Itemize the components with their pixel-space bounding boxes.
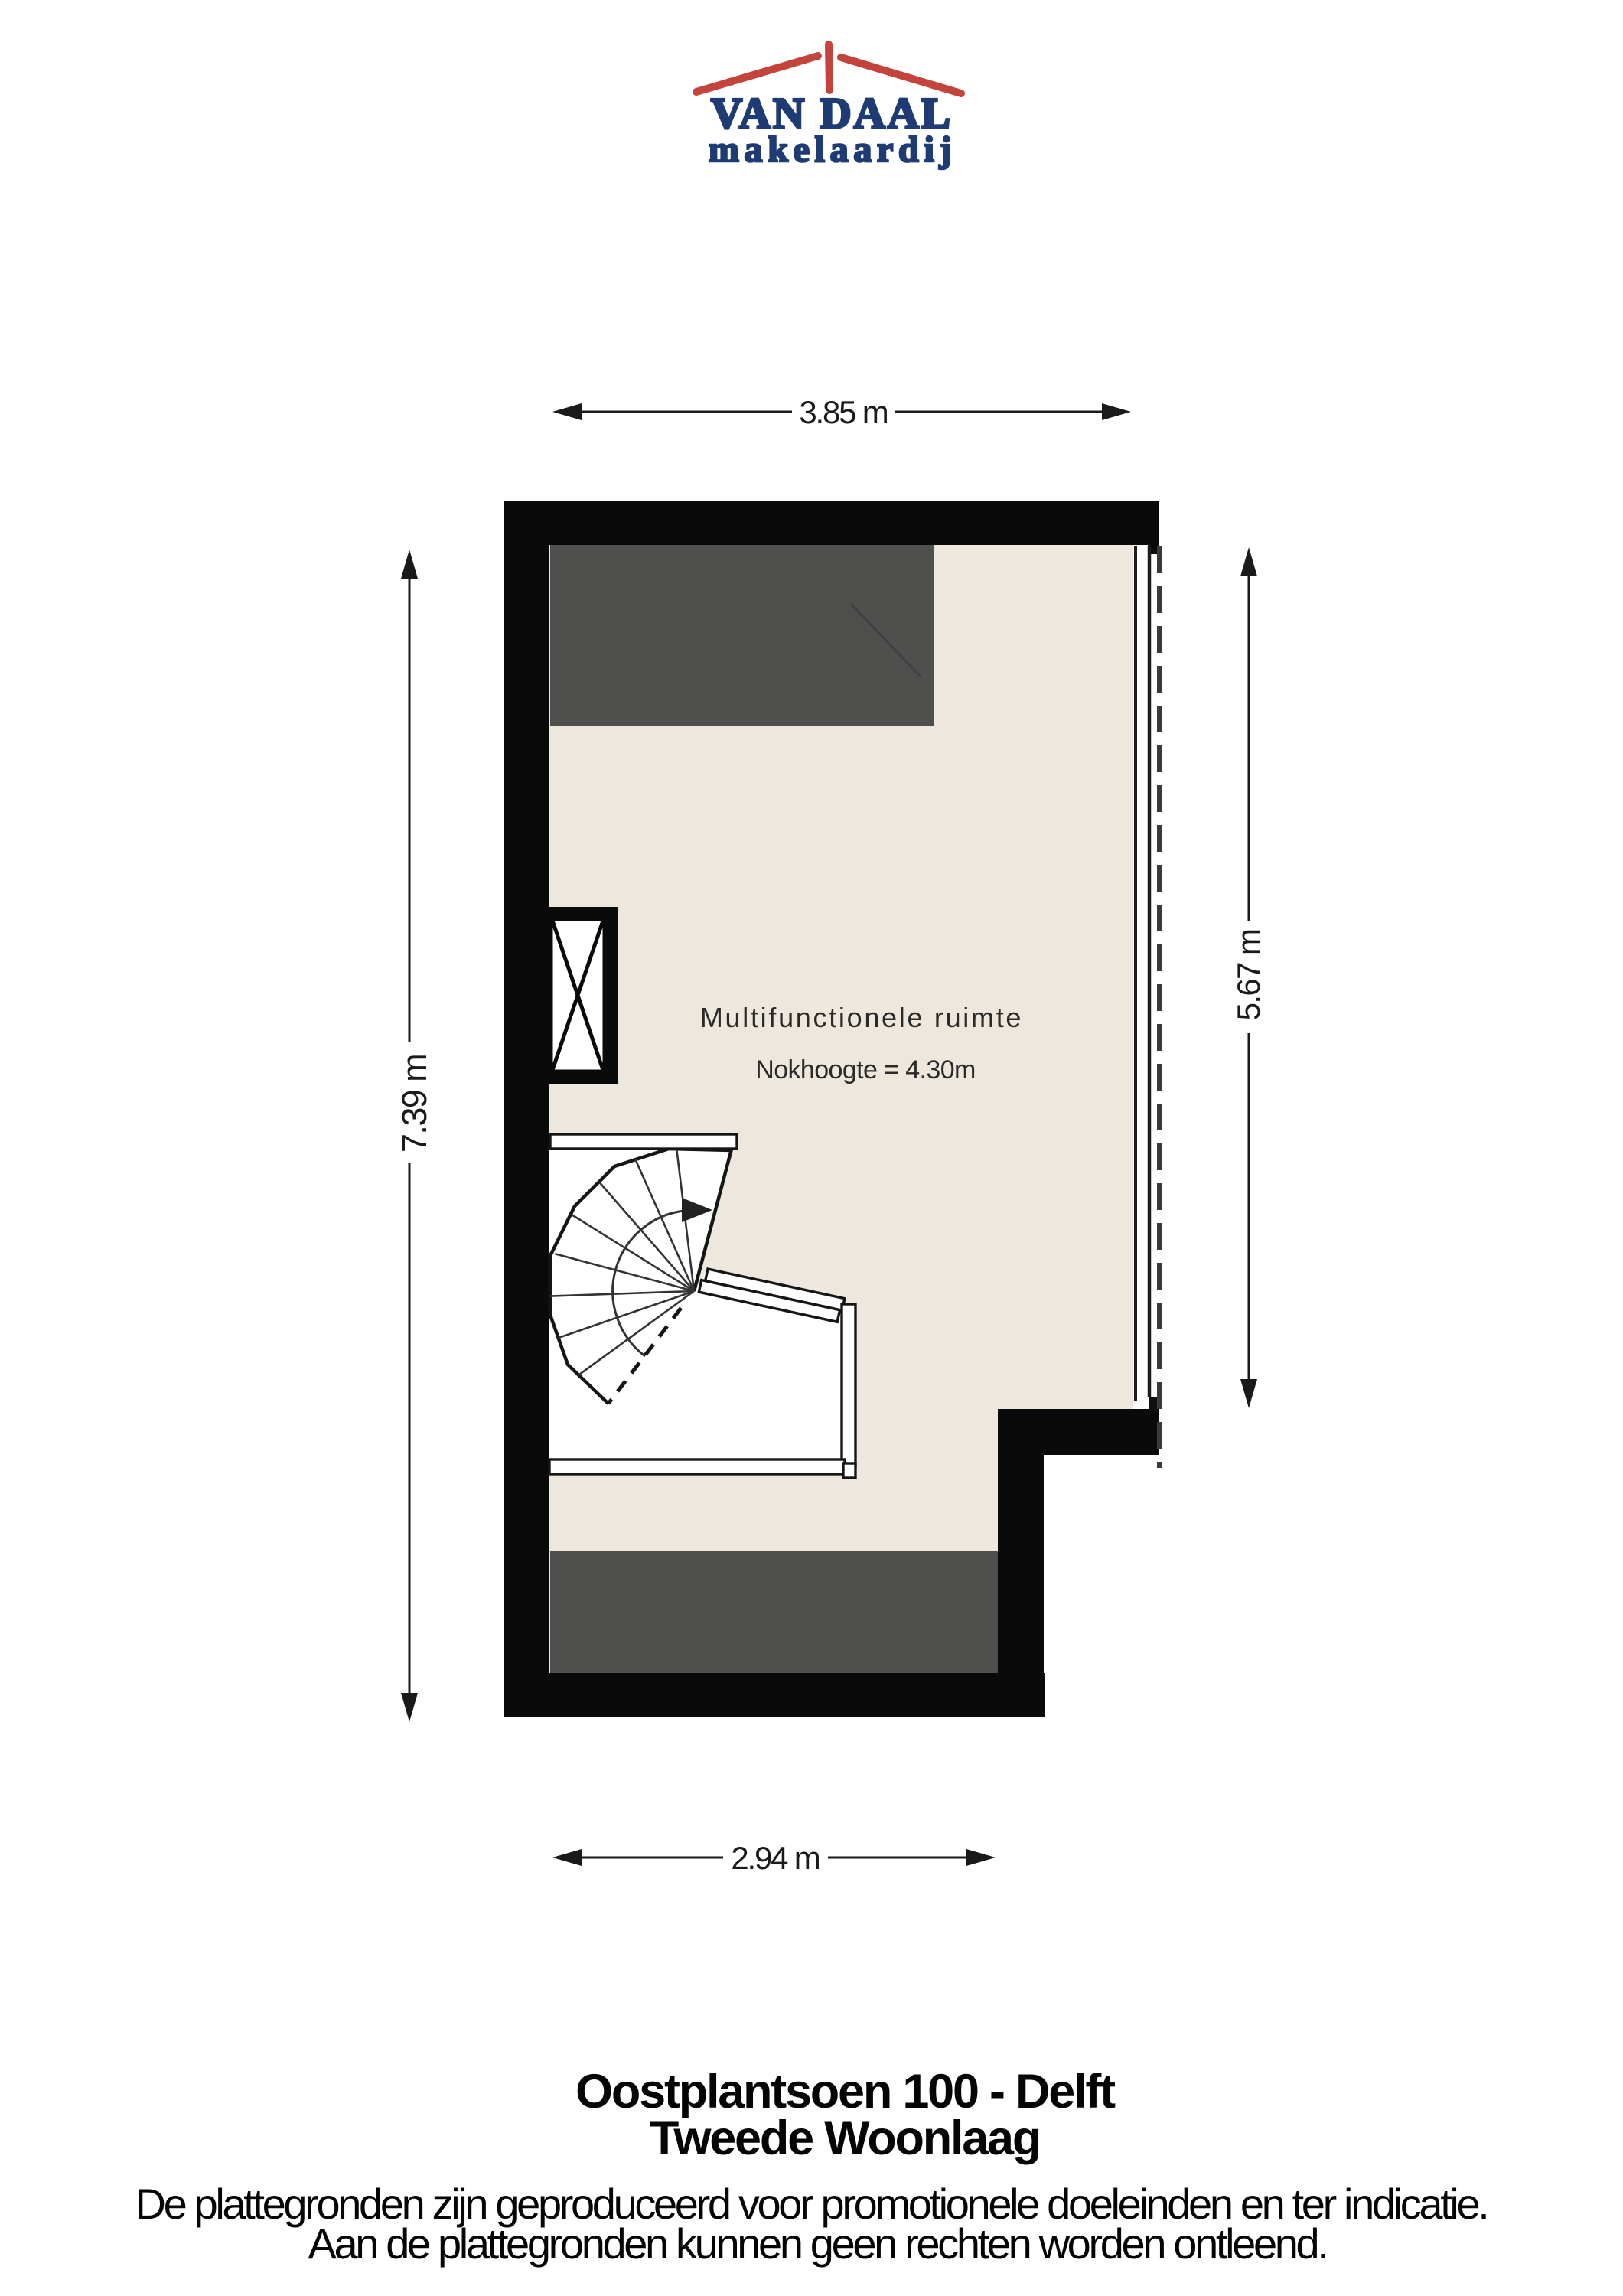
svg-text:2.94 m: 2.94 m [731,1840,819,1876]
svg-text:3.85 m: 3.85 m [799,394,887,430]
svg-text:5.67 m: 5.67 m [1230,930,1266,1021]
svg-text:Tweede Woonlaag: Tweede Woonlaag [650,2112,1040,2165]
svg-text:Aan de plattegronden kunnen ge: Aan de plattegronden kunnen geen rechten… [308,2219,1326,2268]
svg-text:Multifunctionele ruimte: Multifunctionele ruimte [700,1002,1023,1033]
svg-text:7.39 m: 7.39 m [395,1055,434,1153]
svg-text:Nokhoogte = 4.30m: Nokhoogte = 4.30m [755,1055,976,1084]
svg-text:makelaardij: makelaardij [709,129,957,170]
svg-text:Oostplantsoen 100 - Delft: Oostplantsoen 100 - Delft [575,2065,1116,2118]
